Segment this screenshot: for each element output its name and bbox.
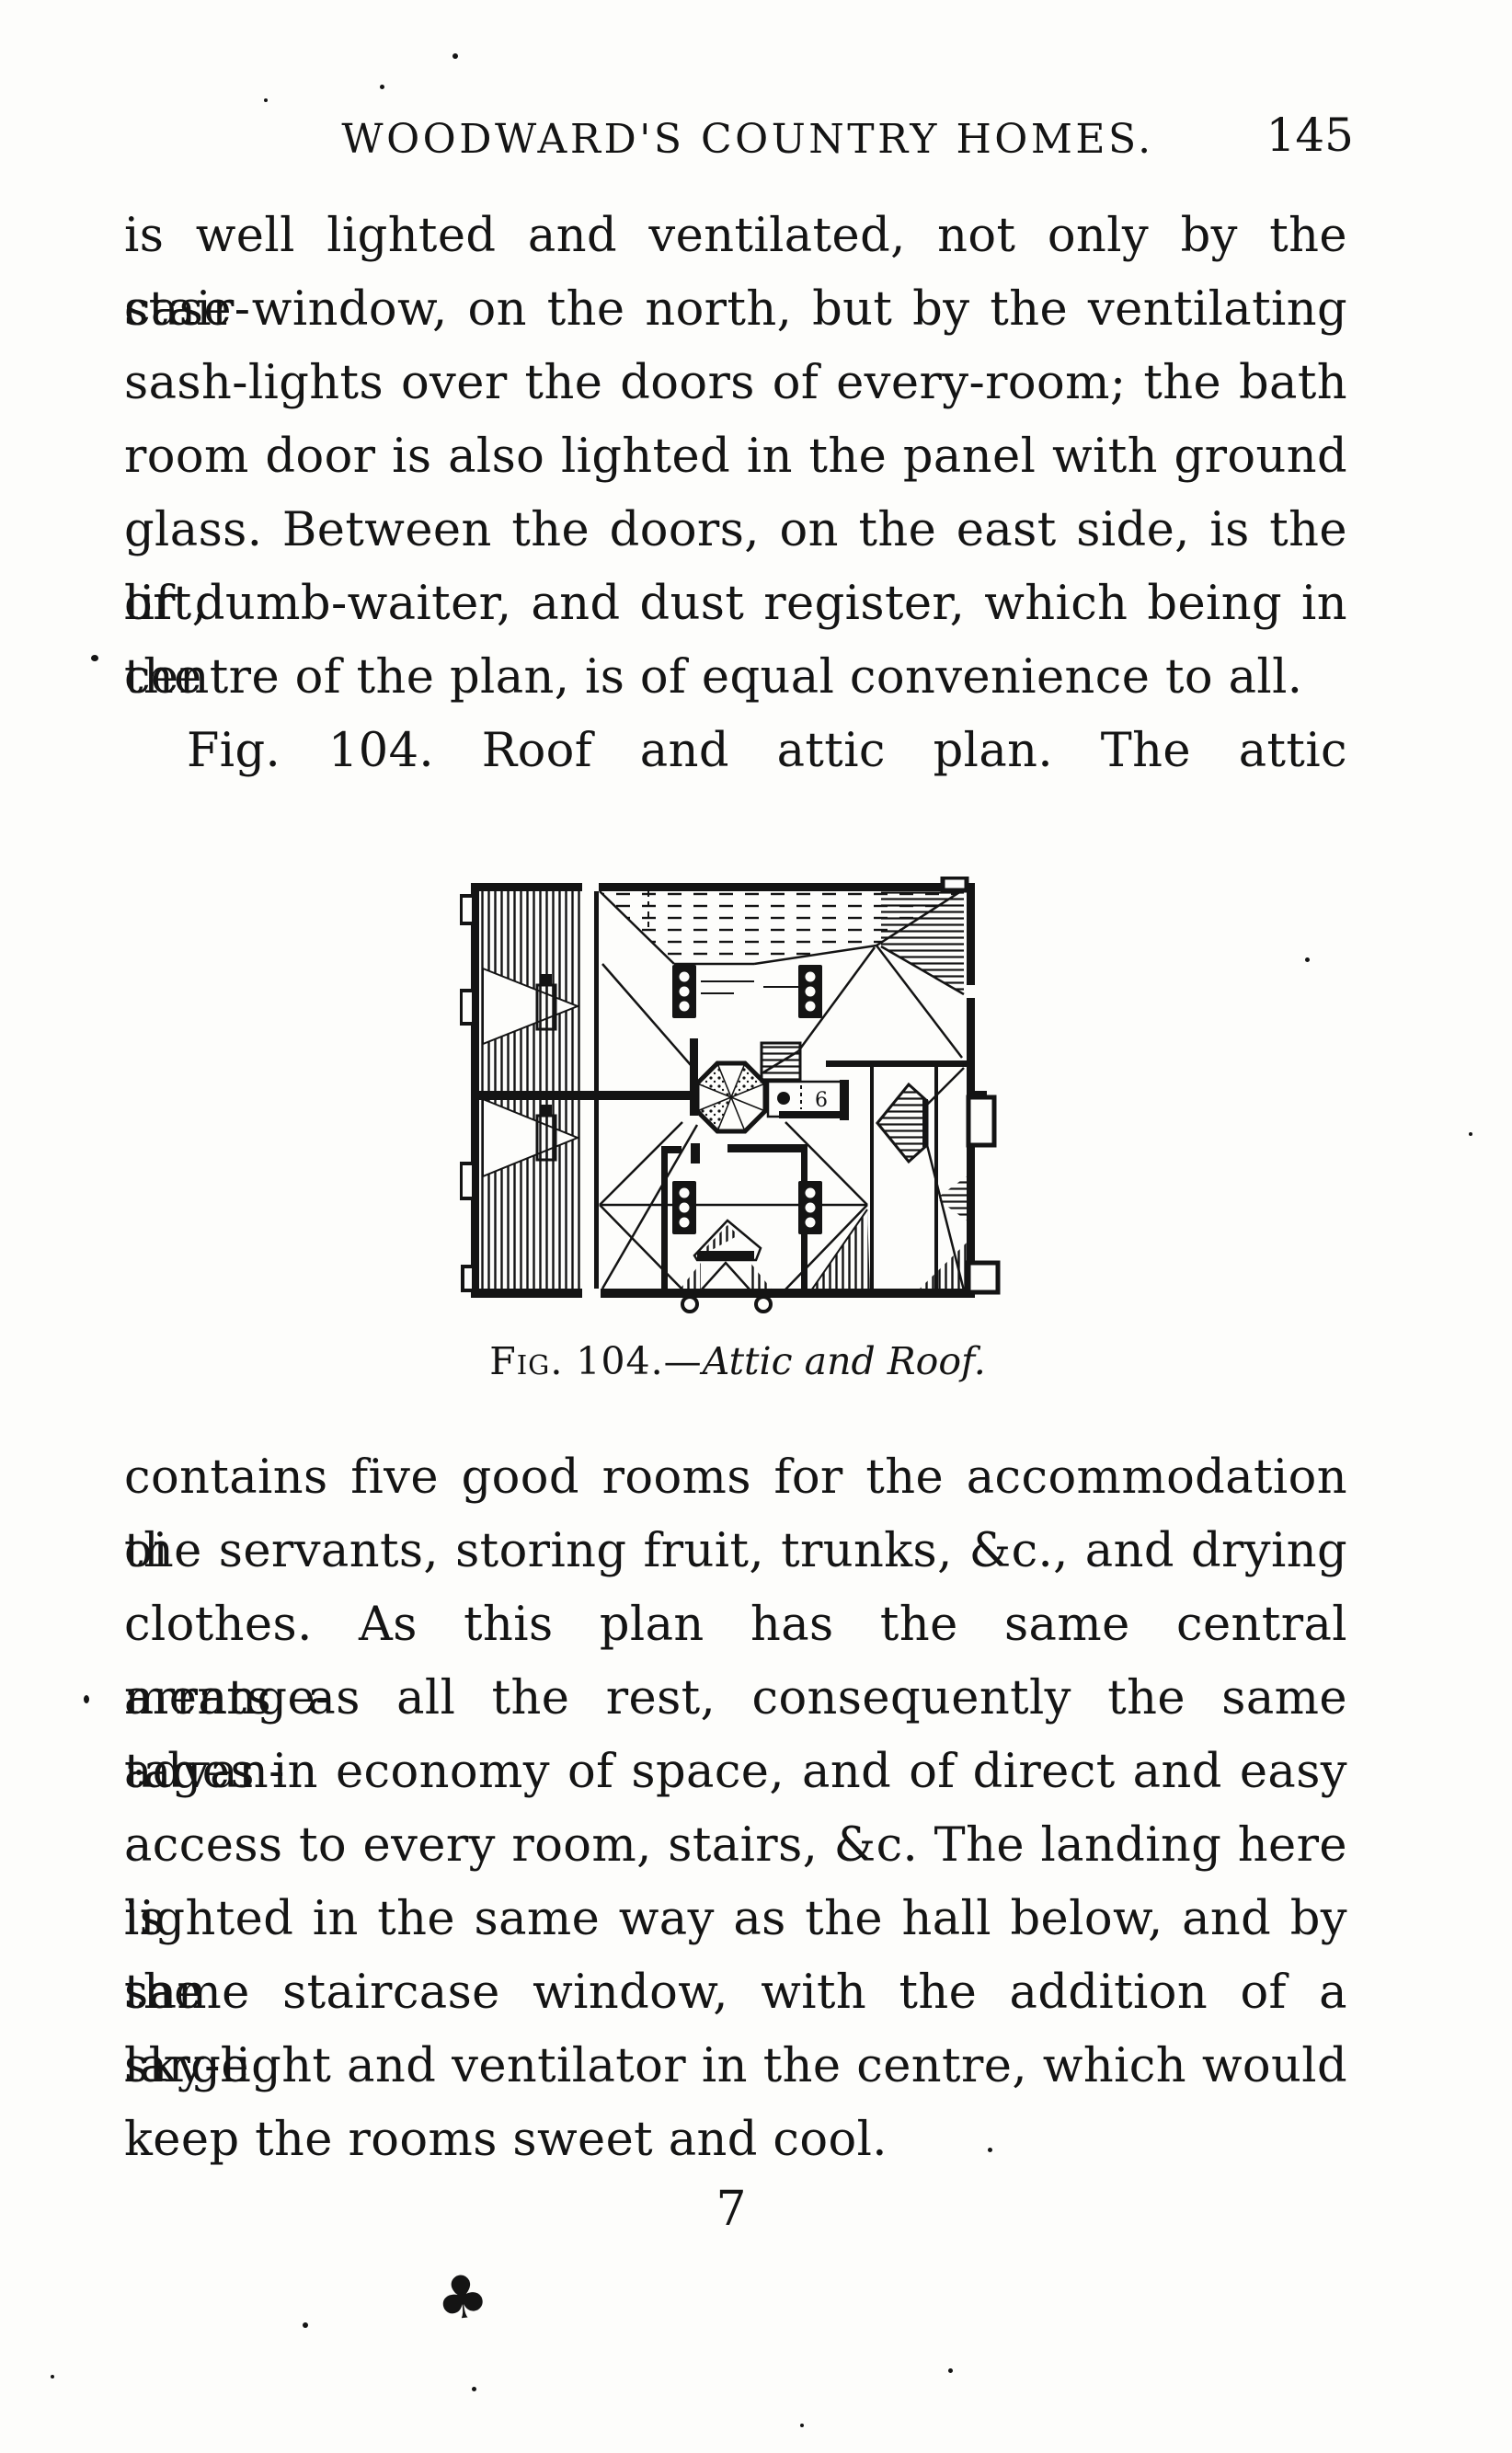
attic-roof-plan-drawing: 6 [460,877,1012,1325]
body-text-line: or dumb-waiter, and dust register, which… [124,567,1347,641]
svg-text:6: 6 [815,1089,828,1112]
top-roof-planes [600,891,964,1058]
ink-speck [988,2148,992,2152]
ink-speck [51,2375,54,2378]
body-text-line: case window, on the north, but by the ve… [124,273,1347,347]
running-header-title: WOODWARD'S COUNTRY HOMES. [341,116,1153,163]
body-text-line: Fig. 104. Roof and attic plan. The attic [124,715,1347,788]
body-text-line: tages in economy of space, and of direct… [124,1736,1347,1809]
body-text-line: same staircase window, with the addition… [124,1956,1347,2030]
signature-number: 7 [704,2182,759,2237]
body-text-line: glass. Between the doors, on the east si… [124,494,1347,567]
ink-speck [91,655,98,661]
ink-speck [800,2424,804,2427]
ink-speck [472,2387,476,2391]
body-text-line: clothes. As this plan has the same centr… [124,1588,1347,1662]
figure-intro-line: Fig. 104. Roof and attic plan. The attic [124,715,1347,788]
ink-blot-mark: ♣ [432,2262,493,2335]
ink-speck [452,53,458,59]
figure-caption-label: Fig. 104.— [489,1339,702,1383]
ink-speck [303,2322,308,2328]
left-roof-hatch [479,891,599,1289]
ink-speck [84,1695,89,1703]
body-text-line: room door is also lighted in the panel w… [124,420,1347,494]
body-text-line: centre of the plan, is of equal convenie… [124,641,1347,715]
lift-dumbwaiter-block: 6 [762,1043,849,1120]
body-text-line: the servants, storing fruit, trunks, &c.… [124,1515,1347,1588]
body-text-line: is well lighted and ventilated, not only… [124,200,1347,273]
paragraph-2: contains five good rooms for the accommo… [124,1441,1347,2177]
book-page: WOODWARD'S COUNTRY HOMES. 145 is well li… [0,0,1512,2453]
ink-speck [948,2368,953,2373]
figure-caption-title: Attic and Roof. [703,1339,986,1383]
skylight-octagon [697,1063,765,1131]
body-text-line: ments as all the rest, consequently the … [124,1662,1347,1736]
ink-speck [264,98,268,102]
body-text-line: sky-light and ventilator in the centre, … [124,2030,1347,2103]
body-text-line: keep the rooms sweet and cool. [124,2103,1347,2177]
ink-speck [380,85,384,89]
figure-caption: Fig. 104.—Attic and Roof. [370,1334,1105,1389]
body-text-line: sash-lights over the doors of every-room… [124,347,1347,420]
attic-roof-plan-figure: 6 [460,877,1012,1325]
ink-speck [1469,1132,1472,1136]
ink-speck [136,1770,142,1775]
body-text-line: contains five good rooms for the accommo… [124,1441,1347,1515]
body-text-line: access to every room, stairs, &c. The la… [124,1809,1347,1883]
ink-speck [1305,957,1310,962]
body-text-line: lighted in the same way as the hall belo… [124,1883,1347,1956]
page-number: 145 [1266,109,1354,162]
paragraph-1: is well lighted and ventilated, not only… [124,200,1347,715]
